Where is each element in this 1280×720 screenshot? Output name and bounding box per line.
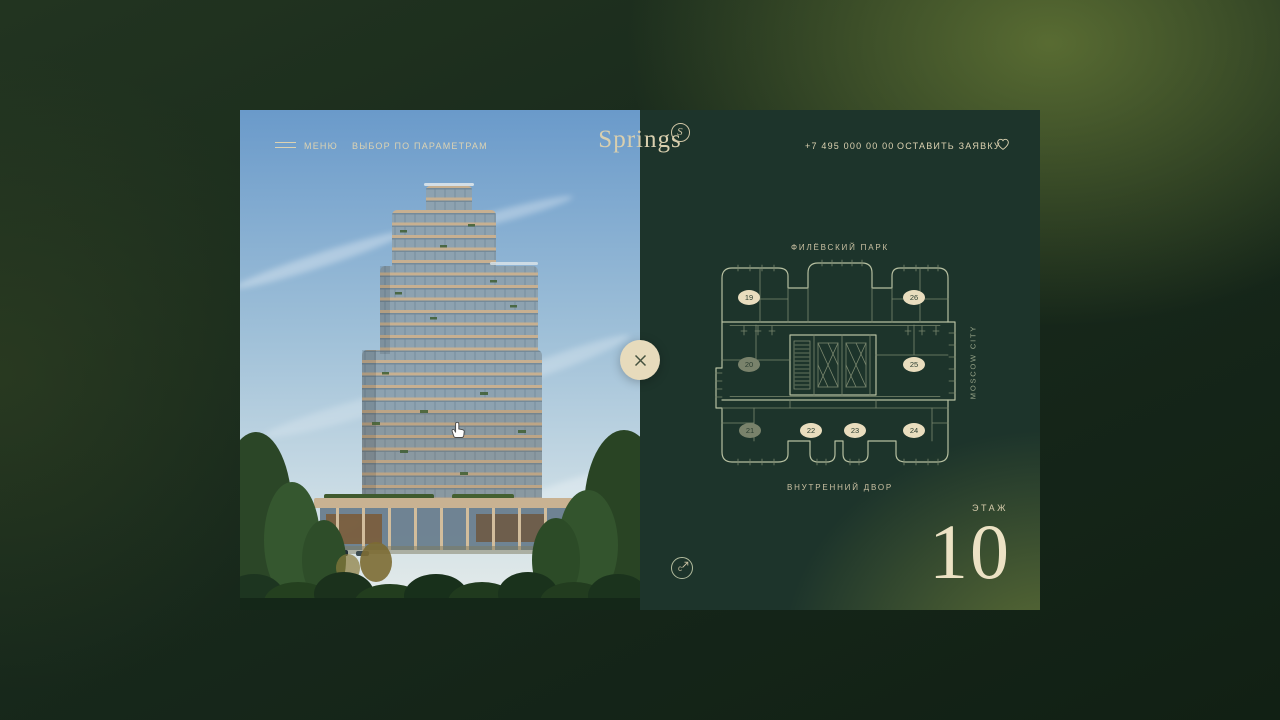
close-button[interactable] — [620, 340, 660, 380]
building-render — [240, 110, 640, 610]
floorplan-panel: ФИЛЁВСКИЙ ПАРК ВНУТРЕННИЙ ДВОР MOSCOW CI… — [640, 110, 1040, 610]
menu-button[interactable]: МЕНЮ — [304, 141, 338, 151]
apartment-badge-19[interactable]: 19 — [738, 290, 760, 305]
compass-button[interactable]: с — [671, 557, 693, 579]
apartment-badge-26[interactable]: 26 — [903, 290, 925, 305]
apartment-badge-21[interactable]: 21 — [739, 423, 761, 438]
building-photo-panel[interactable] — [240, 110, 640, 610]
apartment-badge-22[interactable]: 22 — [800, 423, 822, 438]
apartment-badge-24[interactable]: 24 — [903, 423, 925, 438]
header: МЕНЮ ВЫБОР ПО ПАРАМЕТРАМ Springs S +7 49… — [240, 110, 1040, 180]
close-icon — [634, 354, 647, 367]
menu-hamburger-icon[interactable] — [275, 142, 296, 149]
heart-icon — [995, 136, 1011, 152]
logo-springs[interactable]: Springs — [598, 126, 681, 154]
apartment-badge-25[interactable]: 25 — [903, 357, 925, 372]
main-window: ФИЛЁВСКИЙ ПАРК ВНУТРЕННИЙ ДВОР MOSCOW CI… — [240, 110, 1040, 610]
floor-number: 10 — [929, 509, 1011, 595]
apartment-badge-20[interactable]: 20 — [738, 357, 760, 372]
compass-arrow-icon — [681, 560, 690, 569]
phone-link[interactable]: +7 495 000 00 00 — [805, 141, 895, 151]
logo-monogram-icon: S — [671, 123, 690, 142]
favorites-button[interactable] — [995, 136, 1011, 152]
filter-by-params-button[interactable]: ВЫБОР ПО ПАРАМЕТРАМ — [352, 141, 488, 151]
apartment-badge-23[interactable]: 23 — [844, 423, 866, 438]
submit-request-button[interactable]: ОСТАВИТЬ ЗАЯВКУ — [897, 141, 1001, 151]
